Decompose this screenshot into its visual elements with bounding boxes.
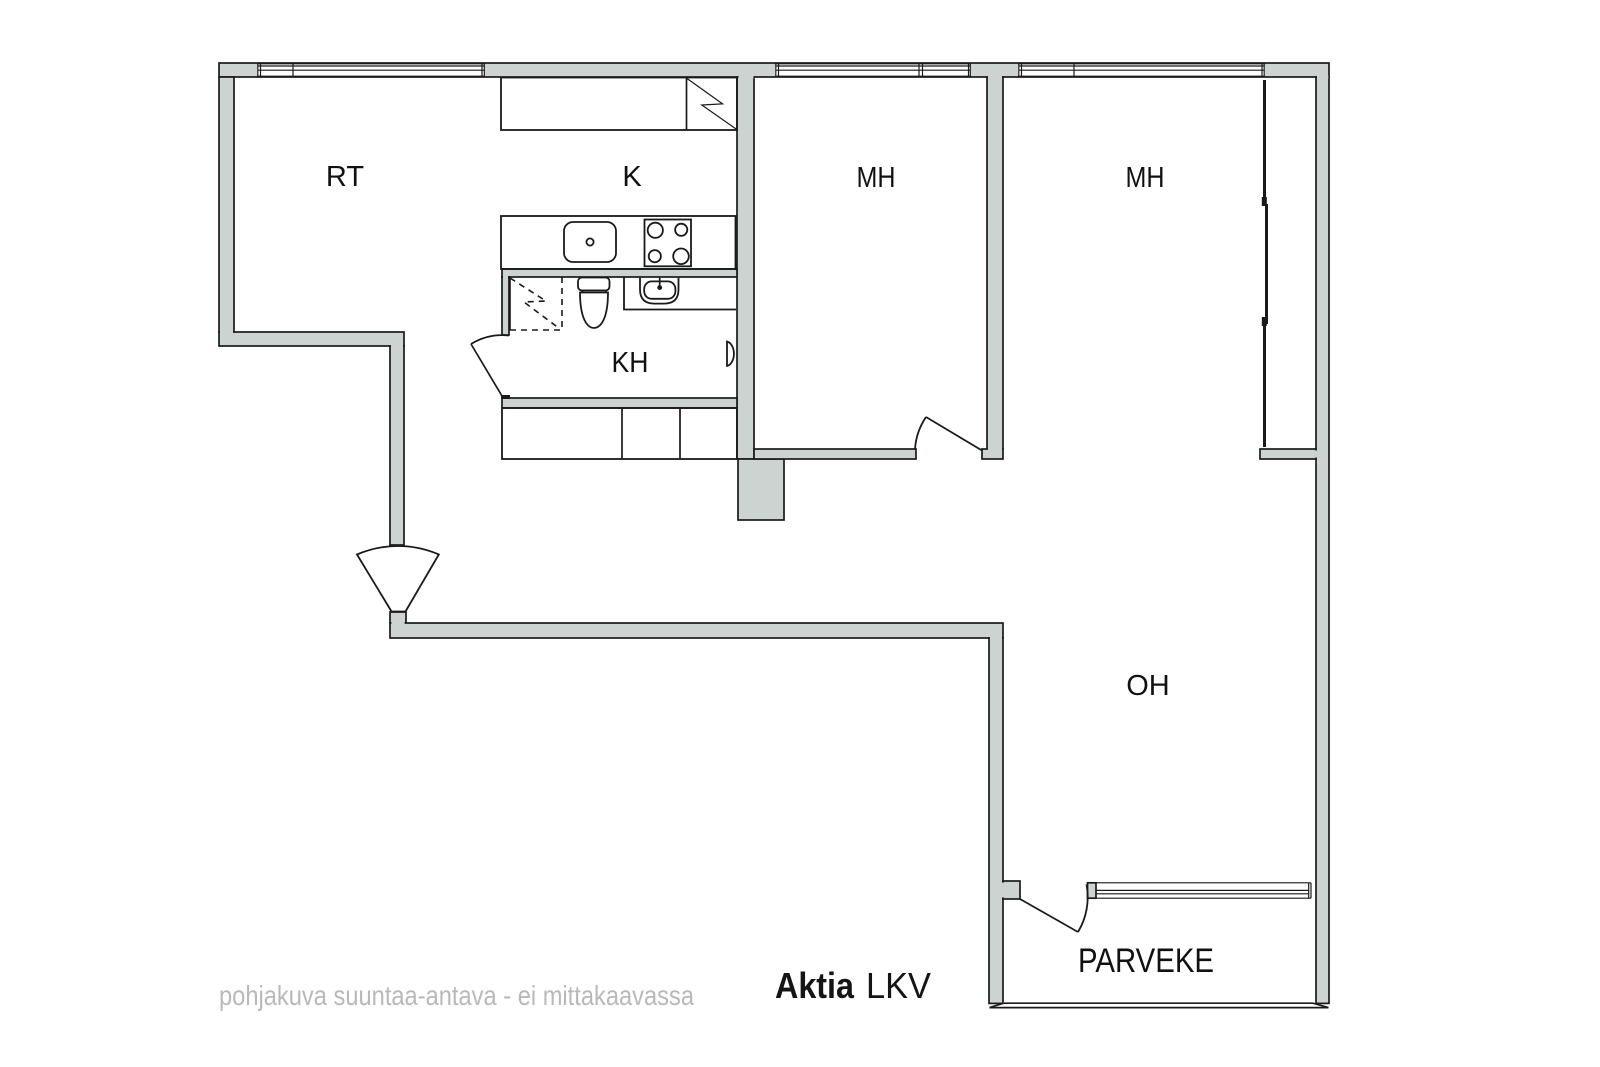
svg-text:RT: RT — [326, 161, 364, 193]
svg-text:MH: MH — [857, 162, 896, 194]
svg-text:OH: OH — [1126, 670, 1170, 702]
svg-text:K: K — [622, 161, 642, 193]
svg-text:KH: KH — [612, 347, 649, 379]
svg-text:Aktia: Aktia — [775, 965, 855, 1006]
svg-text:pohjakuva suuntaa-antava - ei: pohjakuva suuntaa-antava - ei mittakaava… — [219, 980, 694, 1011]
svg-text:PARVEKE: PARVEKE — [1078, 942, 1214, 980]
svg-text:MH: MH — [1126, 162, 1165, 194]
svg-text:LKV: LKV — [866, 965, 931, 1006]
